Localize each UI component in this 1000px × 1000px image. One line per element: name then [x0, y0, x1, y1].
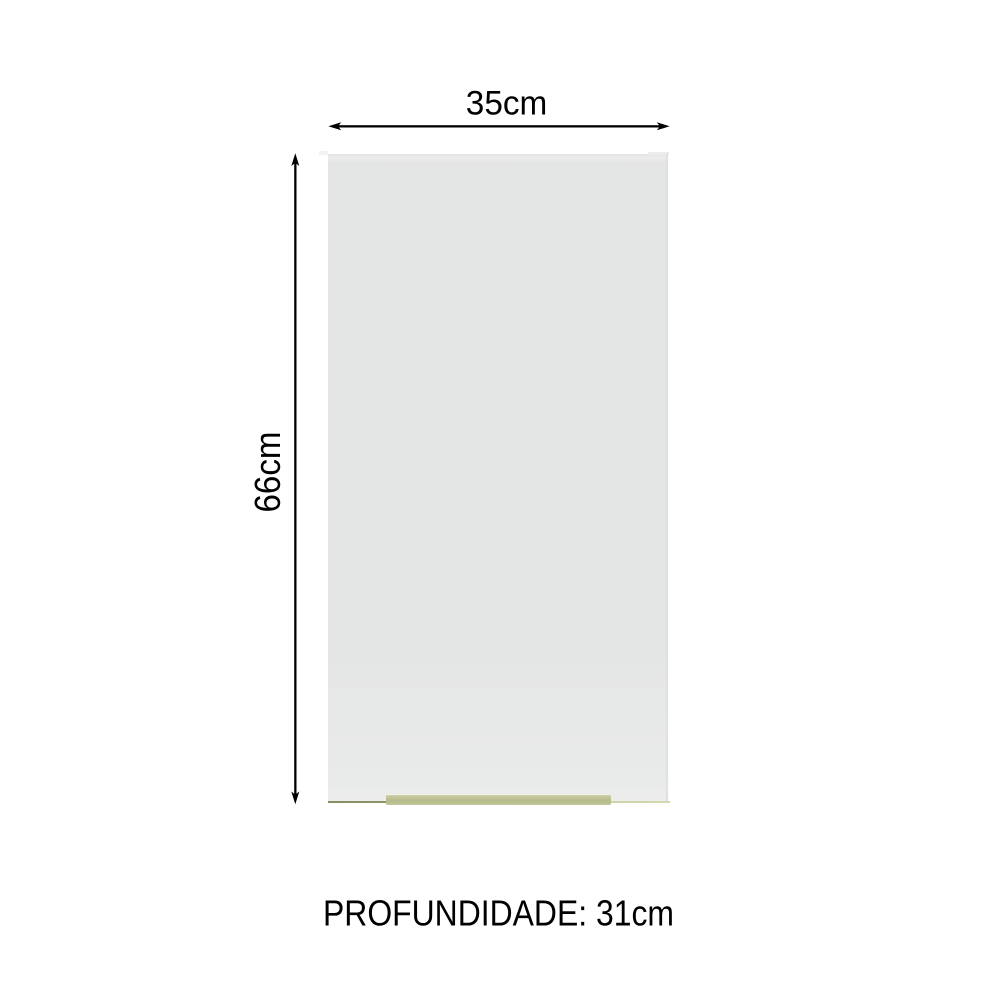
- svg-text:35cm: 35cm: [466, 85, 548, 123]
- svg-text:PROFUNDIDADE: 31cm: PROFUNDIDADE: 31cm: [323, 892, 674, 933]
- svg-text:66cm: 66cm: [247, 432, 288, 513]
